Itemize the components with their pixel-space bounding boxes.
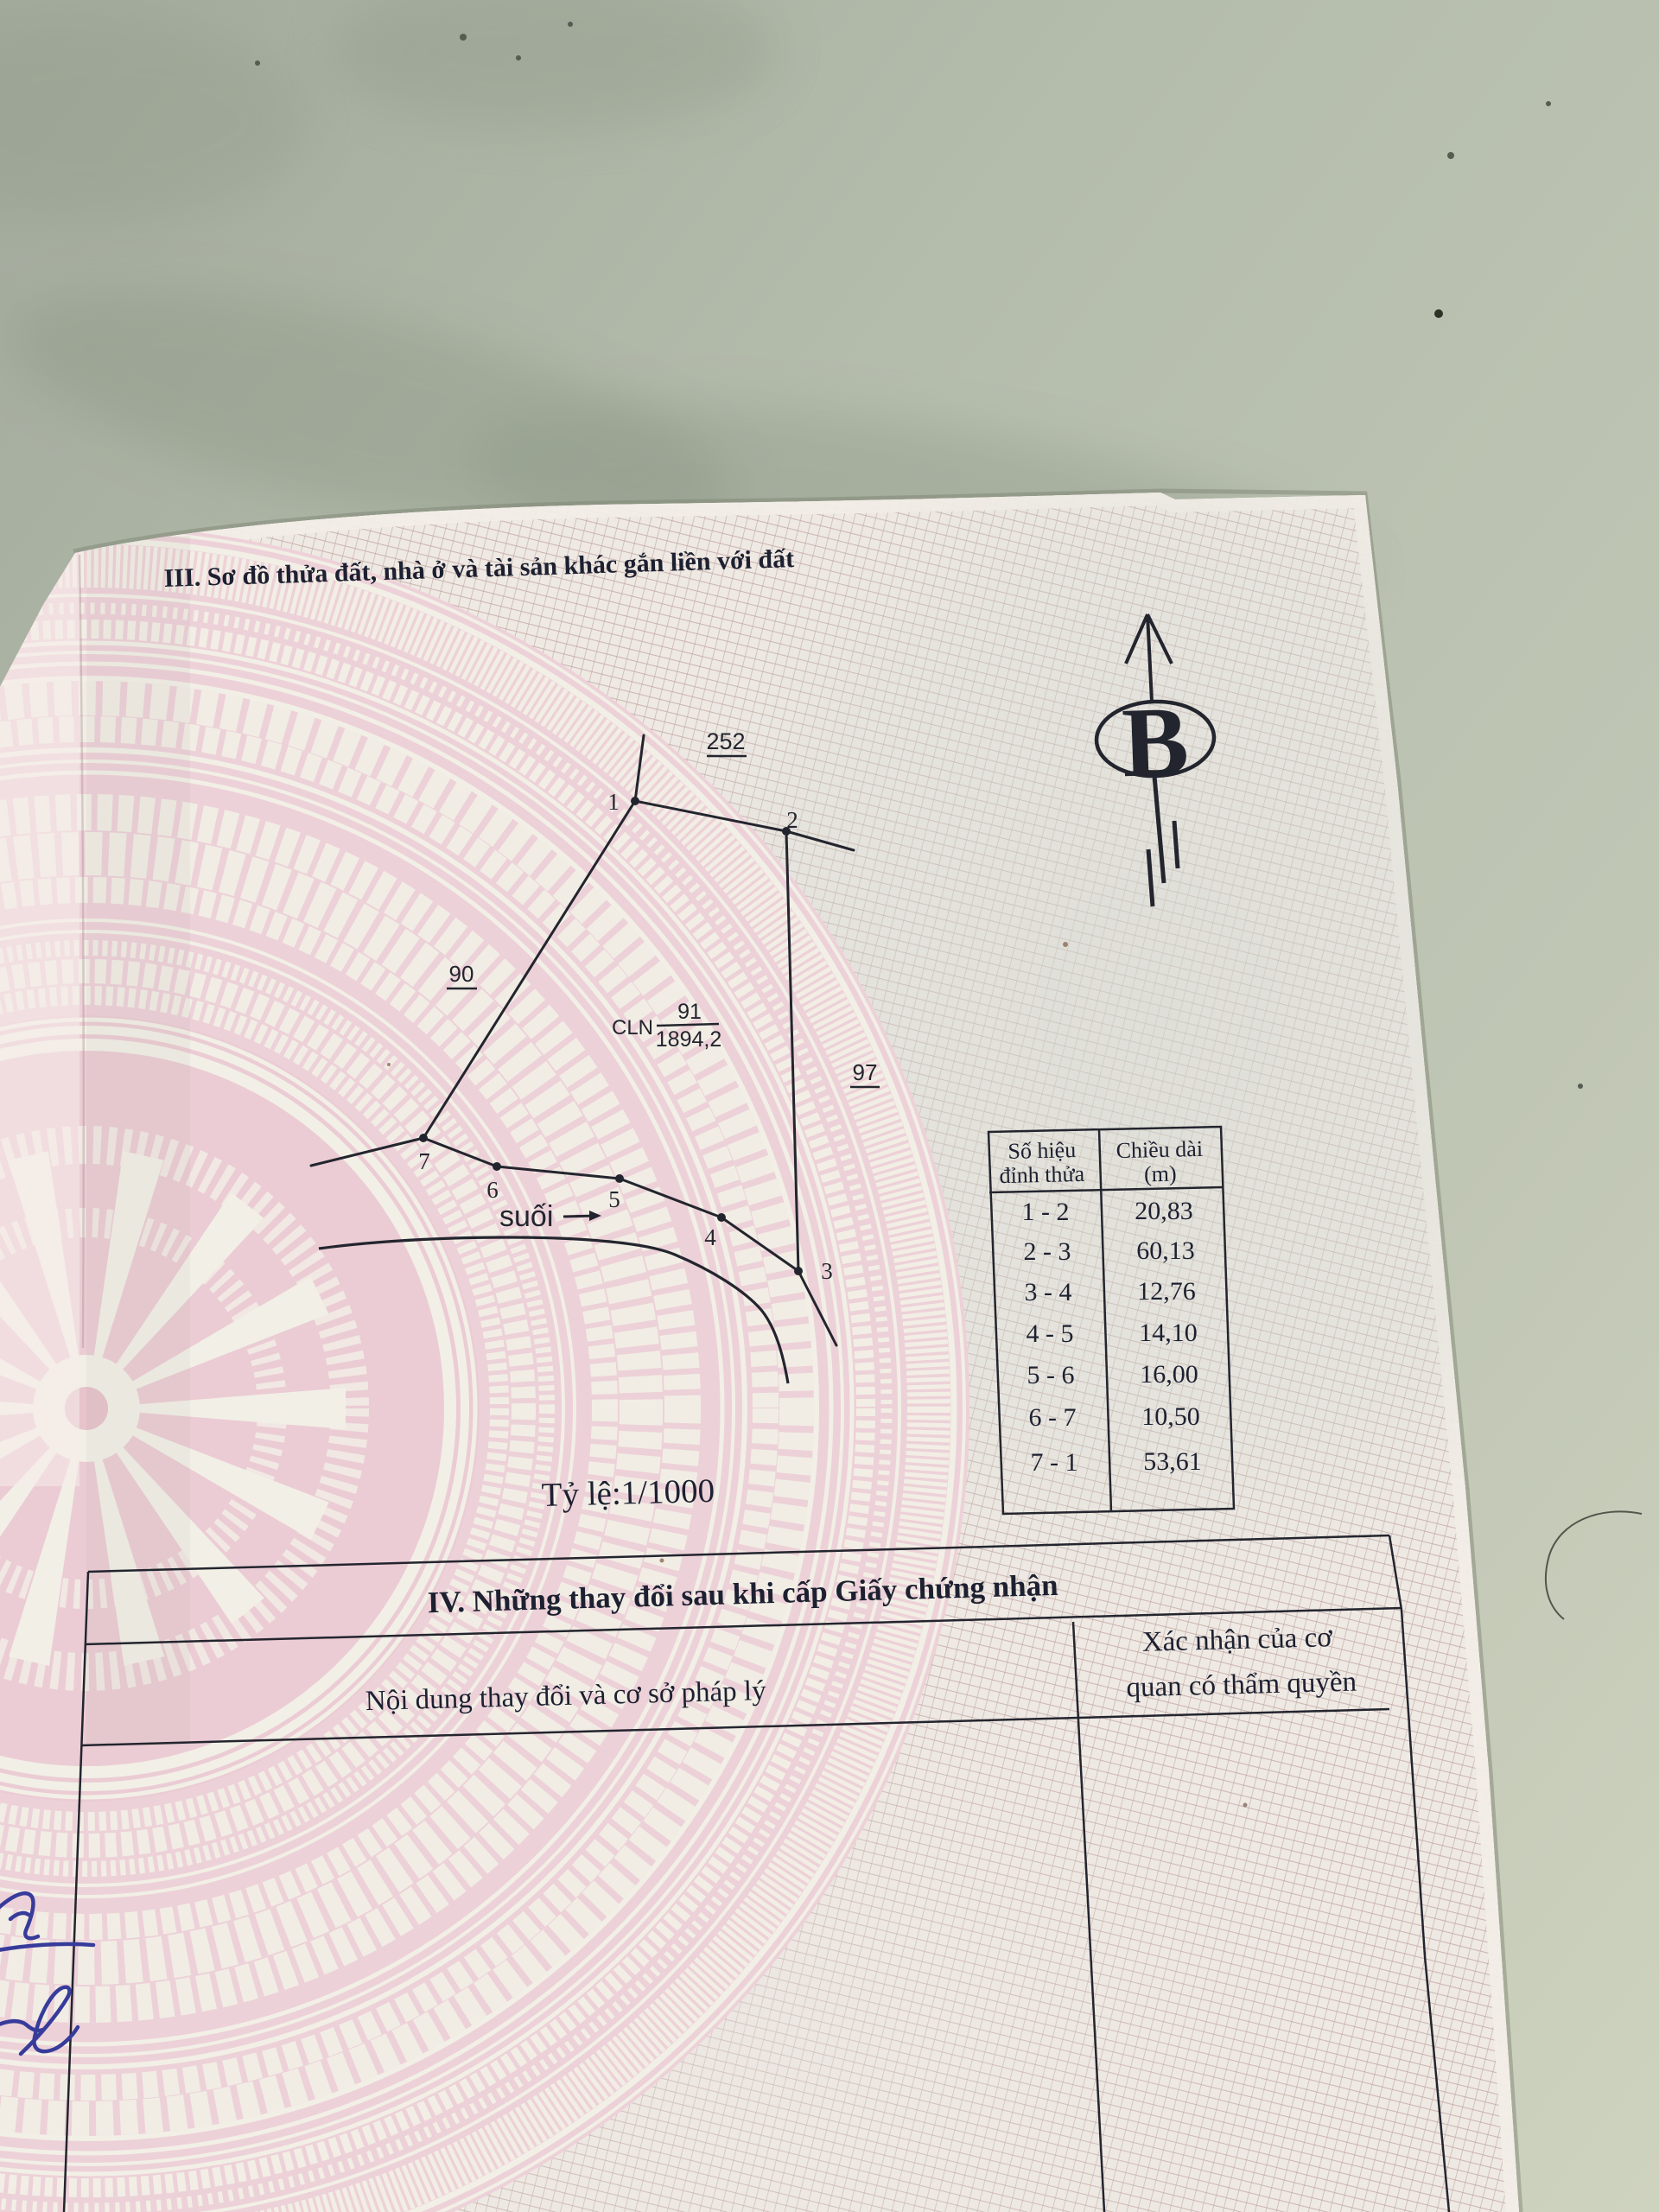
svg-text:2: 2 bbox=[786, 807, 798, 833]
svg-text:suối: suối bbox=[499, 1200, 553, 1233]
svg-text:5 - 6: 5 - 6 bbox=[1027, 1361, 1075, 1389]
svg-text:Xác nhận của cơ: Xác nhận của cơ bbox=[1141, 1622, 1332, 1658]
svg-text:1: 1 bbox=[607, 789, 620, 815]
svg-text:3 - 4: 3 - 4 bbox=[1025, 1278, 1072, 1306]
svg-text:53,61: 53,61 bbox=[1143, 1447, 1202, 1476]
svg-text:20,83: 20,83 bbox=[1135, 1197, 1193, 1225]
svg-text:4 - 5: 4 - 5 bbox=[1027, 1319, 1074, 1348]
svg-text:6: 6 bbox=[486, 1177, 499, 1203]
svg-text:Chiều dài: Chiều dài bbox=[1116, 1136, 1203, 1163]
svg-text:quan có thẩm quyền: quan có thẩm quyền bbox=[1126, 1667, 1357, 1704]
svg-text:12,76: 12,76 bbox=[1137, 1277, 1196, 1306]
svg-text:B: B bbox=[1121, 686, 1191, 798]
svg-text:90: 90 bbox=[449, 961, 474, 987]
svg-text:5: 5 bbox=[608, 1186, 620, 1212]
svg-text:97: 97 bbox=[853, 1059, 878, 1085]
svg-text:CLN: CLN bbox=[612, 1016, 653, 1039]
svg-text:2 - 3: 2 - 3 bbox=[1024, 1237, 1071, 1266]
svg-text:252: 252 bbox=[706, 728, 745, 754]
svg-text:1894,2: 1894,2 bbox=[656, 1027, 721, 1052]
svg-text:7 - 1: 7 - 1 bbox=[1031, 1448, 1078, 1477]
svg-text:16,00: 16,00 bbox=[1140, 1360, 1198, 1389]
svg-text:91: 91 bbox=[677, 1000, 702, 1024]
svg-text:3: 3 bbox=[821, 1258, 833, 1284]
svg-text:7: 7 bbox=[418, 1148, 430, 1174]
svg-text:14,10: 14,10 bbox=[1139, 1319, 1198, 1347]
svg-text:10,50: 10,50 bbox=[1141, 1402, 1200, 1431]
svg-text:1 - 2: 1 - 2 bbox=[1022, 1198, 1070, 1226]
svg-text:(m): (m) bbox=[1144, 1161, 1177, 1187]
svg-text:6 - 7: 6 - 7 bbox=[1029, 1403, 1077, 1432]
svg-text:60,13: 60,13 bbox=[1136, 1236, 1195, 1265]
svg-text:đỉnh thửa: đỉnh thửa bbox=[999, 1161, 1085, 1188]
svg-text:4: 4 bbox=[704, 1224, 716, 1250]
svg-text:Tỷ lệ:1/1000: Tỷ lệ:1/1000 bbox=[541, 1472, 715, 1514]
svg-text:Số hiệu: Số hiệu bbox=[1007, 1137, 1076, 1164]
